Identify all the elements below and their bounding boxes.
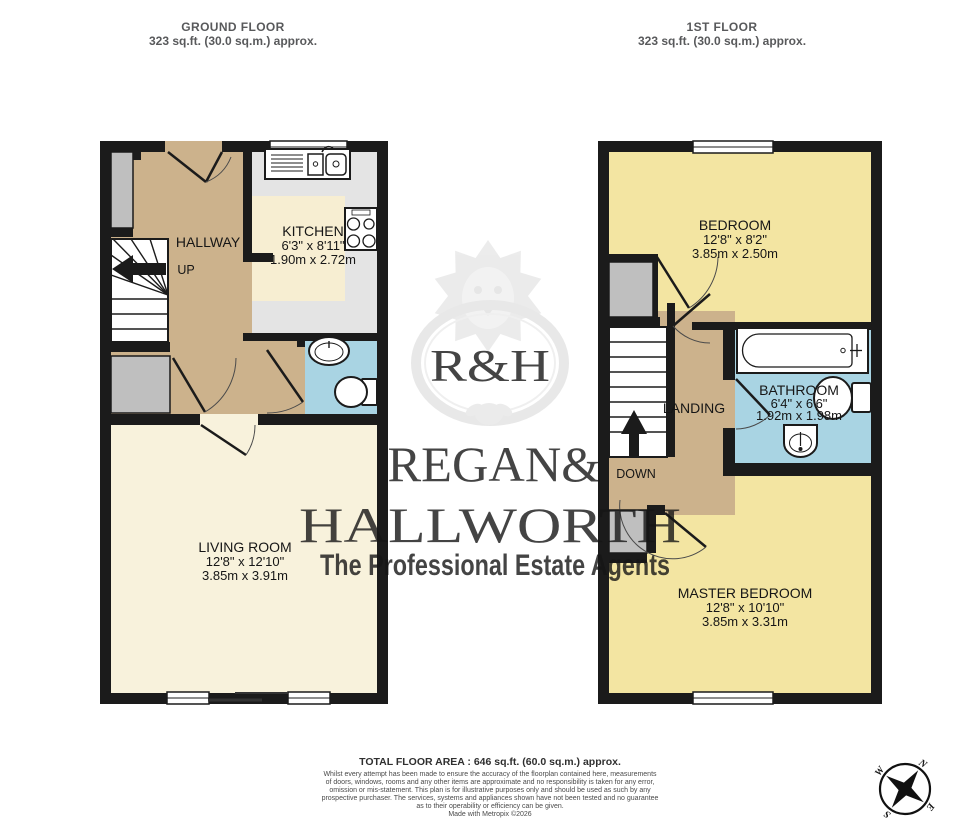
kitchen-metric: 1.90m x 2.72m bbox=[270, 252, 356, 267]
watermark-name-line1: REGAN& bbox=[388, 436, 601, 492]
floorplan-canvas: R&H REGAN& HALLWORTH The Professional Es… bbox=[0, 0, 980, 824]
bathroom-basin bbox=[784, 425, 817, 457]
disclaimer: Whilst every attempt has been made to en… bbox=[230, 771, 750, 819]
watermark-tagline: The Professional Estate Agents bbox=[320, 549, 670, 582]
disclaimer-line: omission or mis-statement. This plan is … bbox=[230, 787, 750, 795]
watermark-lion-eye bbox=[494, 286, 502, 294]
master-bedroom-metric: 3.85m x 3.31m bbox=[702, 614, 788, 629]
bedroom-metric: 3.85m x 2.50m bbox=[692, 246, 778, 261]
landing-label: LANDING bbox=[663, 400, 725, 416]
bathroom-metric: 1.92m x 1.98m bbox=[756, 408, 842, 423]
hall-recess bbox=[111, 152, 133, 228]
hallway-label: HALLWAY bbox=[176, 234, 241, 250]
compass-west: W bbox=[873, 764, 888, 779]
disclaimer-line: of doors, windows, rooms and any other i… bbox=[230, 779, 750, 787]
disclaimer-line: Whilst every attempt has been made to en… bbox=[230, 771, 750, 779]
watermark-lion-eye bbox=[474, 286, 482, 294]
living-room-imperial: 12'8" x 12'10" bbox=[206, 554, 285, 569]
bathtub bbox=[737, 328, 868, 373]
bedroom-imperial: 12'8" x 8'2" bbox=[703, 232, 767, 247]
watermark-monogram: R&H bbox=[430, 340, 550, 391]
living-room-label: LIVING ROOM bbox=[198, 539, 291, 555]
understairs-recess bbox=[111, 356, 170, 413]
up-label: UP bbox=[177, 263, 194, 277]
kitchen-label: KITCHEN bbox=[282, 223, 343, 239]
master-bedroom-label: MASTER BEDROOM bbox=[678, 585, 813, 601]
kitchen-imperial: 6'3" x 8'11" bbox=[281, 238, 344, 253]
living-room-metric: 3.85m x 3.91m bbox=[202, 568, 288, 583]
bedroom-closet bbox=[609, 262, 653, 317]
ground-stairs bbox=[111, 239, 168, 342]
compass-north: N bbox=[916, 757, 930, 771]
footer: TOTAL FLOOR AREA : 646 sq.ft. (60.0 sq.m… bbox=[230, 756, 750, 819]
master-bedroom-imperial: 12'8" x 10'10" bbox=[706, 600, 785, 615]
wc-basin bbox=[309, 337, 349, 365]
bedroom-label: BEDROOM bbox=[699, 217, 771, 233]
down-label: DOWN bbox=[616, 467, 656, 481]
total-floor-area: TOTAL FLOOR AREA : 646 sq.ft. (60.0 sq.m… bbox=[230, 756, 750, 768]
wc-toilet bbox=[335, 377, 377, 407]
compass-star-icon bbox=[886, 770, 924, 808]
disclaimer-line: as to their operability or efficiency ca… bbox=[230, 803, 750, 811]
watermark-name-line2: HALLWORTH bbox=[299, 497, 681, 553]
first-stairs bbox=[609, 327, 667, 457]
hob bbox=[345, 208, 377, 250]
credit-line: Made with Metropix ©2026 bbox=[230, 811, 750, 819]
compass-rose: N E S W bbox=[873, 757, 937, 820]
kitchen-sink-unit bbox=[265, 147, 350, 179]
ground-floor-plan bbox=[100, 141, 388, 704]
disclaimer-line: prospective purchaser. The services, sys… bbox=[230, 795, 750, 803]
watermark-lion-face bbox=[462, 267, 514, 329]
